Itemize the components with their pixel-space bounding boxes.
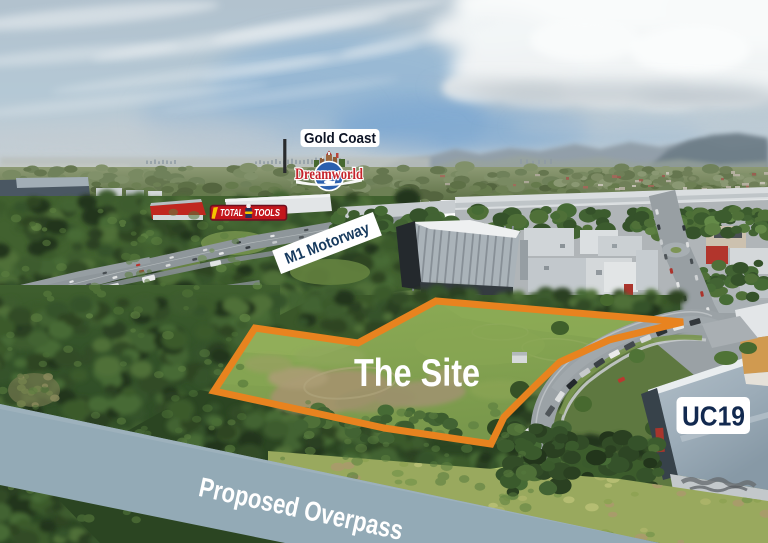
svg-text:The Site: The Site xyxy=(354,352,480,395)
svg-text:Gold Coast: Gold Coast xyxy=(304,130,376,147)
svg-text:Dreamworld: Dreamworld xyxy=(295,166,363,183)
svg-text:UC19: UC19 xyxy=(682,401,745,432)
svg-text:TOTAL: TOTAL xyxy=(220,208,243,219)
svg-text:TOOLS: TOOLS xyxy=(254,208,280,219)
